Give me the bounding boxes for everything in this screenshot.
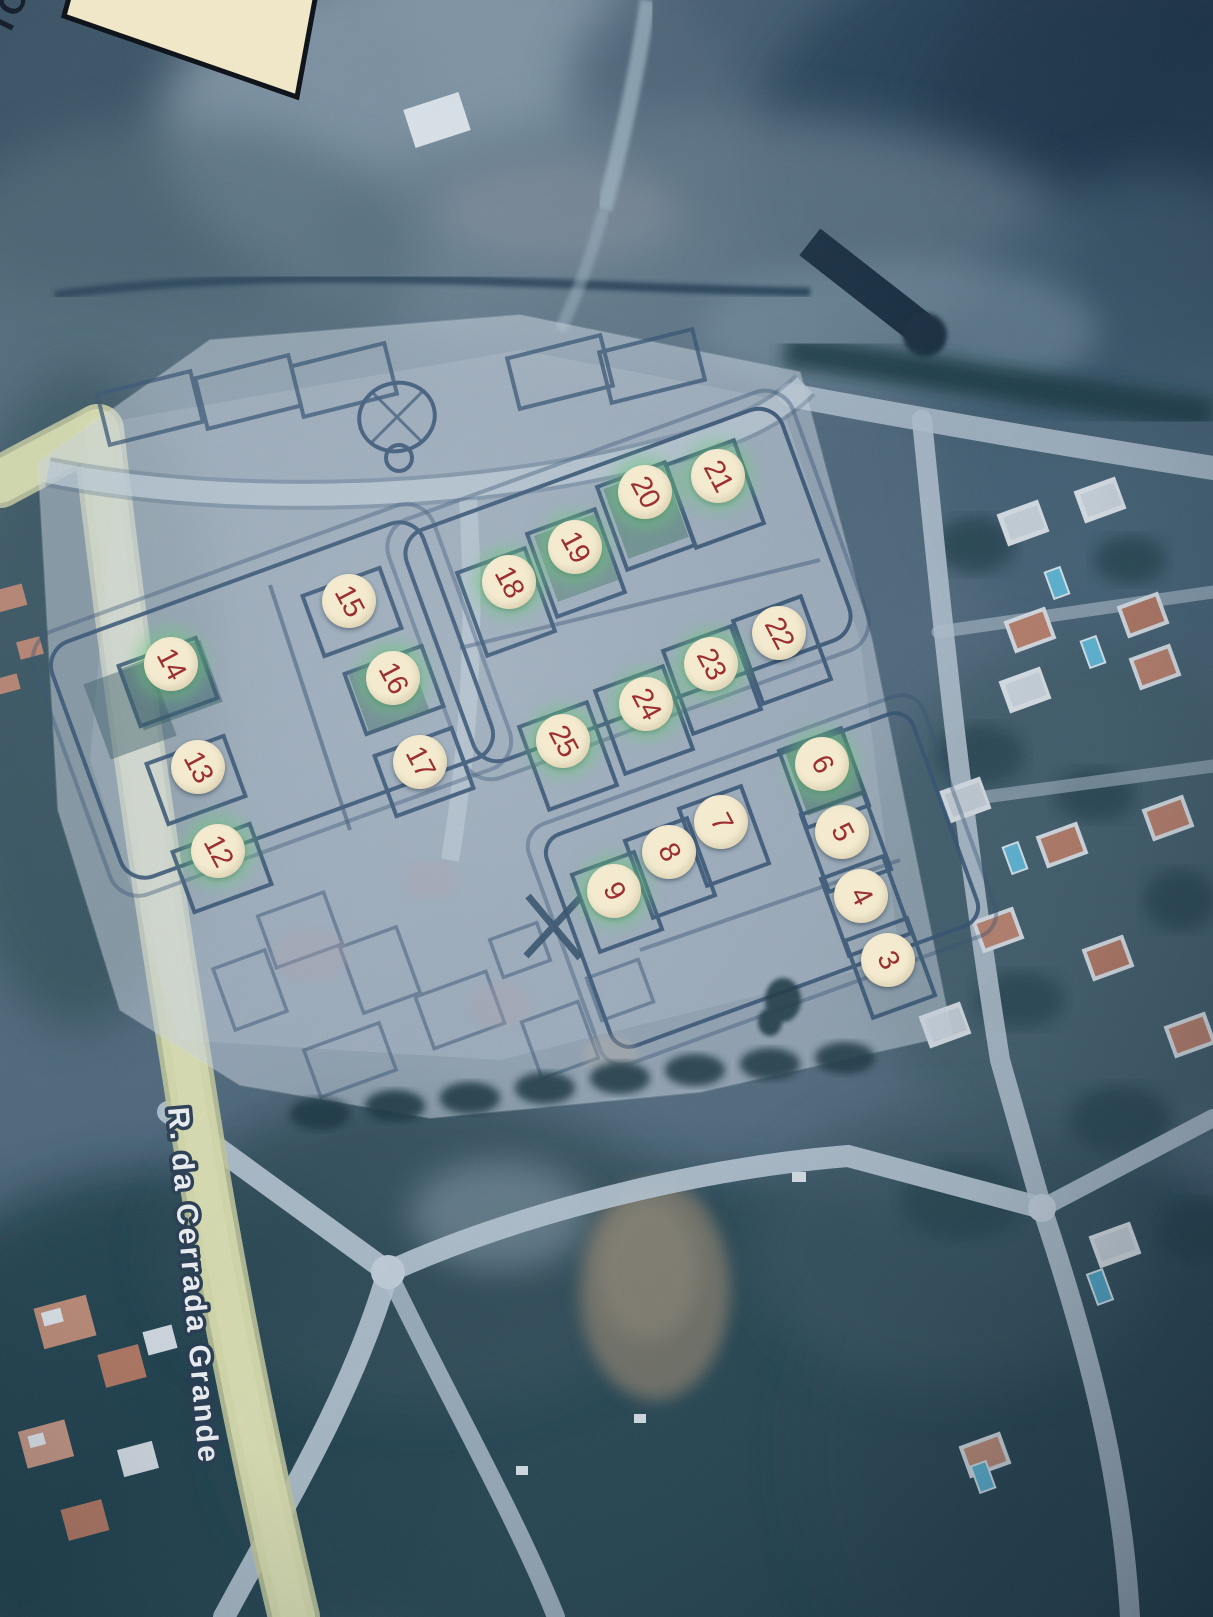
lot-marker[interactable]: 15 xyxy=(322,574,376,628)
lot-marker[interactable]: 7 xyxy=(694,795,748,849)
lot-marker[interactable]: 20 xyxy=(618,465,672,519)
lot-marker[interactable]: 22 xyxy=(752,606,806,660)
lot-marker[interactable]: 17 xyxy=(393,735,447,789)
lot-marker[interactable]: 6 xyxy=(795,737,849,791)
lot-marker[interactable]: 21 xyxy=(691,449,745,503)
lot-marker[interactable]: 14 xyxy=(144,637,198,691)
lot-marker-number: 15 xyxy=(312,564,385,637)
lot-marker-number: 14 xyxy=(134,627,207,700)
printed-aerial-map-photo: R. da Cerrada Grande TO 3 4 5 6 7 8 9 12… xyxy=(0,0,1213,1617)
lot-marker[interactable]: 13 xyxy=(171,740,225,794)
lot-marker[interactable]: 19 xyxy=(548,520,602,574)
lot-marker[interactable]: 16 xyxy=(366,651,420,705)
lot-marker[interactable]: 18 xyxy=(482,555,536,609)
lot-marker[interactable]: 4 xyxy=(834,869,888,923)
lot-marker-number: 17 xyxy=(383,725,456,798)
lot-marker-number: 6 xyxy=(785,727,858,800)
lot-marker-number: 4 xyxy=(824,859,897,932)
lot-marker[interactable]: 25 xyxy=(536,714,590,768)
lot-marker[interactable]: 3 xyxy=(861,933,915,987)
lot-marker[interactable]: 8 xyxy=(642,825,696,879)
lot-marker-number: 13 xyxy=(161,730,234,803)
lot-marker-number: 22 xyxy=(742,596,815,669)
lot-marker-number: 18 xyxy=(472,545,545,618)
lot-marker-number: 25 xyxy=(526,704,599,777)
lot-marker[interactable]: 9 xyxy=(587,864,641,918)
lot-marker-number: 16 xyxy=(356,641,429,714)
lot-marker[interactable]: 12 xyxy=(191,824,245,878)
lot-marker-number: 24 xyxy=(609,667,682,740)
lot-marker[interactable]: 23 xyxy=(684,637,738,691)
lot-marker-number: 12 xyxy=(181,814,254,887)
lot-marker-number: 23 xyxy=(674,627,747,700)
lot-marker-number: 3 xyxy=(851,923,924,996)
lot-marker-number: 5 xyxy=(805,795,878,868)
lot-marker-number: 9 xyxy=(577,854,650,927)
lot-marker-number: 20 xyxy=(608,455,681,528)
lot-marker[interactable]: 5 xyxy=(815,805,869,859)
lot-marker-number: 19 xyxy=(538,510,611,583)
lot-marker[interactable]: 24 xyxy=(619,677,673,731)
lot-markers-layer: 3 4 5 6 7 8 9 12 13 14 15 16 17 18 19 20… xyxy=(0,0,1213,1617)
lot-marker-number: 21 xyxy=(681,439,754,512)
